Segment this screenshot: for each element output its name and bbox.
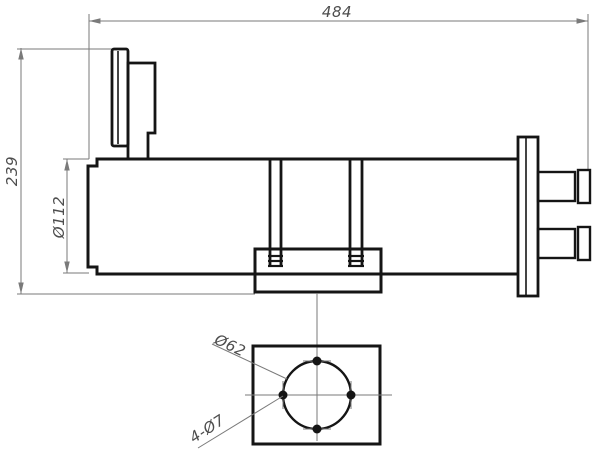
mount-hole-bottom: [313, 425, 322, 434]
plate-boss-outline: [128, 63, 155, 159]
mount-hole-right: [347, 391, 356, 400]
bolt-circle-label: Ø62: [211, 330, 249, 360]
flange-plate-outline: [518, 137, 538, 296]
dim-239-label: 239: [3, 156, 21, 186]
holes-label: 4-Ø7: [186, 411, 228, 447]
bottom-view: Ø62 4-Ø7: [186, 293, 392, 448]
dim-112-label: Ø112: [50, 196, 68, 239]
upper-port-cap: [578, 170, 590, 203]
main-view: [88, 49, 590, 296]
dimension-body-diameter: Ø112: [50, 159, 89, 273]
dimension-overall-length: 484: [89, 3, 588, 170]
drawing-svg: 484 239 Ø112: [0, 0, 600, 459]
mount-hole-top: [313, 357, 322, 366]
cylinder-body-outline: [88, 159, 518, 274]
lower-port-outline: [538, 229, 575, 258]
lower-port-cap: [578, 227, 590, 260]
plate-outline: [112, 49, 128, 146]
technical-drawing-canvas: 484 239 Ø112: [0, 0, 600, 459]
dim-484-label: 484: [322, 3, 352, 21]
top-mount-plate: [112, 49, 155, 159]
end-flange: [518, 137, 590, 296]
clamp-straps: [268, 159, 364, 267]
upper-port-outline: [538, 172, 575, 201]
